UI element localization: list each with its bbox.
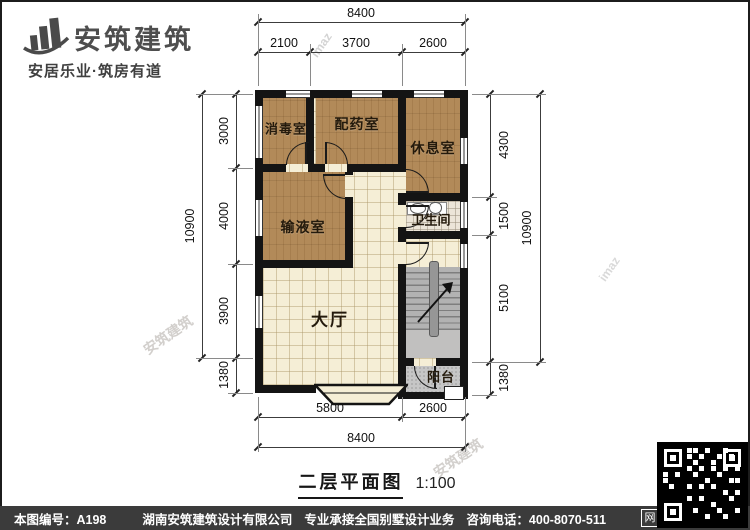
- extension-line: [258, 14, 259, 86]
- window: [460, 202, 468, 228]
- brand-name: 安筑建筑: [74, 18, 194, 57]
- brand-tagline: 安居乐业·筑房有道: [28, 60, 162, 81]
- drawing-title-block: 二层平面图 1:100: [262, 468, 492, 499]
- qr-code: [657, 442, 748, 528]
- floorplan-sheet: 安筑建筑 安居乐业·筑房有道 安筑建筑 安筑建筑 安筑建筑 imaz imaz: [0, 0, 750, 530]
- extension-line: [228, 264, 253, 265]
- door-leaf: [406, 242, 428, 244]
- extension-line: [228, 168, 253, 169]
- dim-top-seg1: 2100: [270, 36, 298, 50]
- wall: [398, 193, 468, 201]
- dim-left-seg4: 1380: [217, 361, 231, 389]
- dim-left-seg2: 4000: [217, 202, 231, 230]
- room-label-rest: 休息室: [411, 138, 456, 158]
- dim-top-seg2: 3700: [342, 36, 370, 50]
- wall: [255, 164, 286, 172]
- door-leaf: [406, 205, 428, 207]
- extension-line: [402, 44, 403, 86]
- dim-left-seg1: 3000: [217, 117, 231, 145]
- window: [286, 90, 310, 98]
- service-text: 专业承接全国别墅设计业务: [304, 509, 454, 528]
- wall: [398, 231, 468, 239]
- qr-finder-icon: [664, 449, 682, 467]
- window: [255, 296, 263, 328]
- qr-finder-icon: [723, 449, 741, 467]
- extension-line: [196, 94, 253, 95]
- dimension-line: [202, 94, 203, 358]
- door-leaf: [323, 174, 345, 176]
- room-label-balcony: 阳台: [427, 367, 455, 386]
- drawing-number: 本图编号：A198: [14, 509, 106, 528]
- stair-direction-arrow: [408, 272, 456, 328]
- footer-bar: 本图编号：A198 湖南安筑建筑设计有限公司 专业承接全国别墅设计业务 咨询电话…: [0, 506, 750, 530]
- window: [460, 138, 468, 164]
- phone-number: 咨询电话：400-8070-511: [466, 509, 606, 528]
- dim-right-seg1: 4300: [497, 131, 511, 159]
- wall: [308, 164, 325, 172]
- company-name: 湖南安筑建筑设计有限公司: [142, 509, 292, 528]
- window: [460, 244, 468, 268]
- dimension-line: [490, 94, 491, 395]
- room-label-infusion: 输液室: [281, 217, 326, 237]
- dim-top-seg3: 2600: [419, 36, 447, 50]
- wall: [255, 385, 316, 393]
- watermark: 安筑建筑: [139, 311, 196, 360]
- drawing-scale: 1:100: [415, 475, 455, 493]
- extension-line: [258, 397, 259, 452]
- wall: [345, 197, 353, 260]
- extension-line: [402, 397, 403, 422]
- dim-right-overall: 10900: [520, 211, 534, 246]
- wall: [436, 358, 468, 366]
- wall: [398, 264, 406, 358]
- dim-bottom-seg2: 2600: [419, 401, 447, 415]
- window: [255, 200, 263, 236]
- extension-line: [472, 395, 497, 396]
- window: [352, 90, 382, 98]
- dim-left-seg3: 3900: [217, 297, 231, 325]
- drawing-title: 二层平面图: [298, 468, 403, 499]
- dim-bottom-overall: 8400: [347, 431, 375, 445]
- dim-right-seg2: 1500: [497, 202, 511, 230]
- dim-right-seg4: 1380: [497, 364, 511, 392]
- extension-line: [465, 14, 466, 86]
- room-label-disinfection: 消毒室: [265, 119, 307, 138]
- wall: [398, 98, 406, 166]
- watermark: imaz: [308, 30, 335, 60]
- extension-line: [472, 94, 546, 95]
- extension-line: [472, 235, 497, 236]
- dimension-line: [540, 94, 541, 362]
- extension-line: [472, 362, 546, 363]
- balcony-corner-window: [444, 386, 464, 400]
- extension-line: [228, 393, 253, 394]
- door-leaf: [305, 142, 307, 164]
- door-leaf: [325, 142, 327, 164]
- window: [414, 90, 444, 98]
- watermark: imaz: [596, 254, 623, 284]
- dim-right-seg3: 5100: [497, 284, 511, 312]
- extension-line: [196, 358, 253, 359]
- room-label-bathroom: 卫生间: [411, 210, 450, 229]
- qr-finder-icon: [664, 503, 682, 521]
- extension-line: [472, 197, 497, 198]
- room-label-hall: 大厅: [311, 306, 349, 331]
- extension-line: [465, 397, 466, 452]
- dimension-line: [258, 22, 465, 23]
- dimension-line: [258, 447, 465, 448]
- brand-logo-icon: [22, 14, 70, 58]
- window: [255, 106, 263, 158]
- room-label-dispensary: 配药室: [335, 114, 380, 134]
- dim-left-overall: 10900: [183, 209, 197, 244]
- dim-bottom-seg1: 5800: [316, 401, 344, 415]
- qr-modules: [687, 448, 692, 453]
- extension-line: [310, 44, 311, 86]
- dimension-line: [258, 417, 465, 418]
- dimension-line: [258, 52, 465, 53]
- wall: [255, 260, 353, 268]
- dim-top-overall: 8400: [347, 6, 375, 20]
- wall: [345, 172, 353, 175]
- door-leaf: [406, 191, 428, 193]
- dimension-line: [236, 94, 237, 393]
